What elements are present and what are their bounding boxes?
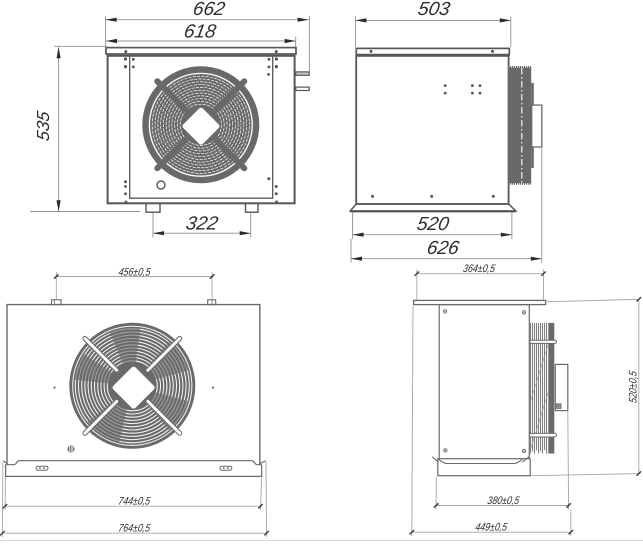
- svg-text:535: 535: [33, 109, 53, 142]
- svg-text:764±0,5: 764±0,5: [117, 523, 151, 535]
- svg-text:449±0,5: 449±0,5: [474, 522, 508, 534]
- svg-text:520±0,5: 520±0,5: [628, 370, 640, 404]
- svg-text:618: 618: [182, 22, 218, 43]
- svg-text:744±0,5: 744±0,5: [117, 496, 151, 508]
- svg-text:626: 626: [425, 238, 461, 259]
- svg-text:456±0,5: 456±0,5: [118, 267, 152, 279]
- svg-text:662: 662: [191, 0, 227, 20]
- svg-text:503: 503: [416, 0, 452, 20]
- svg-text:380±0,5: 380±0,5: [486, 495, 520, 507]
- svg-text:322: 322: [184, 214, 220, 235]
- svg-text:520: 520: [415, 214, 451, 235]
- svg-text:364±0,5: 364±0,5: [462, 263, 496, 275]
